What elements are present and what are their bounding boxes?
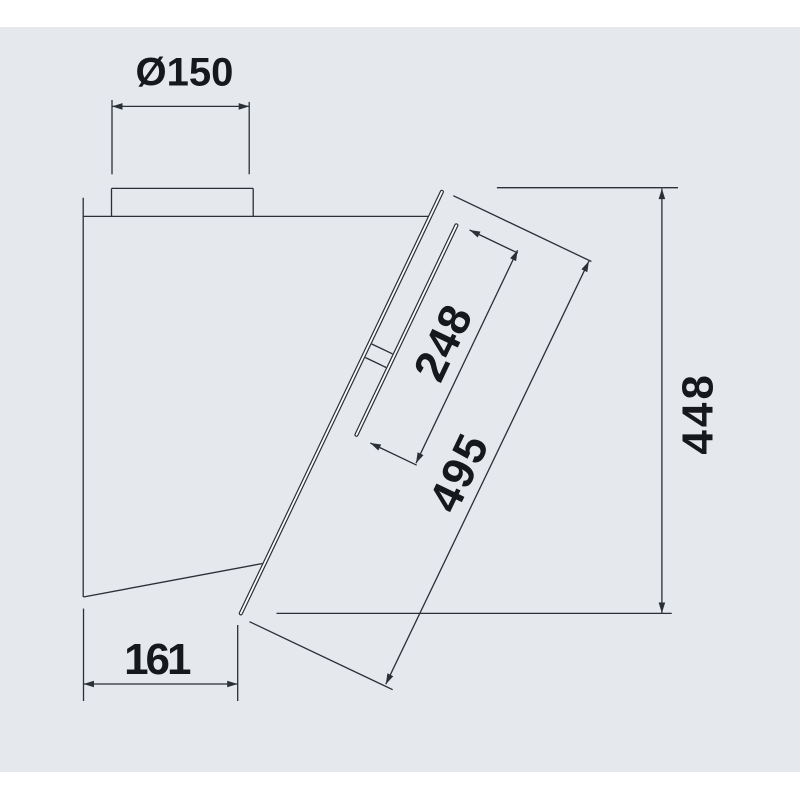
svg-text:448: 448 [674, 372, 723, 454]
svg-text:Ø150: Ø150 [135, 51, 233, 95]
svg-text:161: 161 [124, 635, 191, 684]
